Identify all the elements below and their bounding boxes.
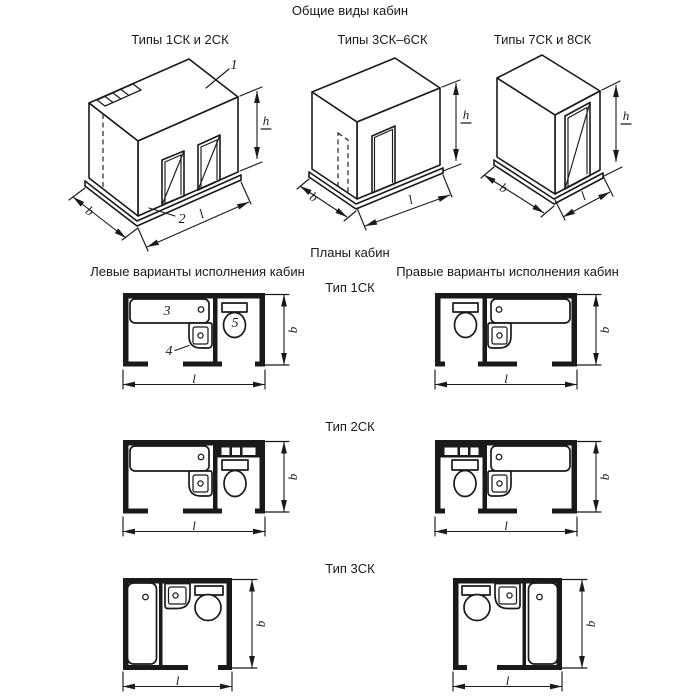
bath-drain bbox=[198, 307, 204, 313]
cabin-body bbox=[309, 58, 443, 209]
dimension-b: b bbox=[265, 442, 300, 513]
dim-h-label: h bbox=[463, 107, 470, 122]
left-variants-header: Левые варианты исполнения кабин bbox=[85, 264, 310, 279]
callout-1-label: 1 bbox=[231, 58, 238, 73]
bathtub bbox=[529, 583, 558, 664]
partition-wall bbox=[159, 583, 163, 665]
bathtub bbox=[491, 299, 570, 323]
basin-drain bbox=[198, 481, 203, 486]
washbasin bbox=[189, 323, 212, 348]
dim-h-label: h bbox=[623, 108, 630, 123]
dim-b-label: b bbox=[583, 620, 598, 627]
toilet bbox=[195, 586, 223, 621]
toilet bbox=[453, 303, 478, 338]
toilet-cistern bbox=[222, 460, 248, 470]
plan-2sk-right: b l bbox=[432, 437, 617, 545]
row-label-type-2sk: Тип 2СК bbox=[0, 419, 700, 434]
dimension-l: l bbox=[435, 370, 577, 389]
vent-duct-block bbox=[218, 445, 260, 458]
bath-drain bbox=[198, 454, 204, 460]
vent-duct-block bbox=[441, 445, 483, 458]
dim-b-label: b bbox=[83, 203, 98, 219]
mirrored-plan-geometry bbox=[435, 440, 577, 514]
dimension-l: l bbox=[123, 370, 265, 389]
dimension-h: h bbox=[240, 87, 271, 171]
dim-b-label: b bbox=[253, 620, 268, 627]
bathtub bbox=[491, 446, 570, 471]
toilet-bowl bbox=[195, 595, 221, 621]
iso-view-7sk-8sk: b l h bbox=[478, 48, 653, 223]
bathtub bbox=[128, 583, 157, 664]
gost-sanitary-cabin-drawing: Общие виды кабин Типы 1СК и 2СК Типы 3СК… bbox=[0, 0, 700, 700]
dimension-l: l bbox=[123, 517, 265, 536]
plan-1sk-left: 3 4 5 b l bbox=[120, 290, 305, 398]
dimension-b: b bbox=[562, 580, 598, 669]
dim-l-label: l bbox=[406, 192, 415, 207]
toilet-cistern bbox=[222, 303, 247, 312]
mirrored-plan-geometry bbox=[453, 578, 562, 670]
basin-drain bbox=[198, 333, 203, 338]
dim-l-label: l bbox=[506, 673, 510, 688]
dimension-b: b bbox=[577, 295, 612, 366]
toilet bbox=[462, 586, 490, 621]
dimension-h: h bbox=[442, 80, 471, 171]
page-title: Общие виды кабин bbox=[0, 3, 700, 18]
plan-3sk-right: b l bbox=[448, 575, 598, 700]
dimension-l: l bbox=[435, 517, 577, 536]
plan-2sk-left: b l bbox=[120, 437, 305, 545]
toilet-cistern bbox=[195, 586, 223, 595]
plan-3sk-left: b l bbox=[118, 575, 268, 700]
dimension-l: l bbox=[123, 672, 232, 691]
washbasin bbox=[495, 584, 520, 609]
partition-wall bbox=[213, 298, 218, 367]
washbasin bbox=[488, 471, 511, 496]
dimension-b: b bbox=[232, 580, 268, 669]
toilet-bowl bbox=[224, 471, 246, 497]
plan-1sk-right: b l bbox=[432, 290, 617, 398]
dim-b-label: b bbox=[285, 473, 300, 480]
dimension-b: b bbox=[577, 442, 612, 513]
mirrored-plan-geometry bbox=[435, 293, 577, 367]
callout-2-label: 2 bbox=[179, 212, 186, 227]
cabin-body bbox=[494, 55, 603, 204]
callout-5-label: 5 bbox=[232, 316, 239, 331]
row-label-type-3sk: Тип 3СК bbox=[0, 561, 700, 576]
iso-view-1sk-2sk: 1 2 b l h bbox=[63, 52, 275, 252]
dim-b-label: b bbox=[597, 473, 612, 480]
basin-drain bbox=[173, 593, 178, 598]
iso-view-3sk-6sk: b l h bbox=[295, 50, 480, 235]
plans-title: Планы кабин bbox=[0, 245, 700, 260]
dimension-h: h bbox=[602, 81, 631, 176]
right-variants-header: Правые варианты исполнения кабин bbox=[395, 264, 620, 279]
dim-l-label: l bbox=[504, 371, 508, 386]
washbasin bbox=[488, 323, 511, 348]
dim-b-label: b bbox=[307, 189, 321, 205]
dim-l-label: l bbox=[176, 673, 180, 688]
cabin-body bbox=[85, 59, 241, 226]
toilet bbox=[222, 460, 248, 497]
toilet bbox=[452, 460, 478, 497]
washbasin bbox=[165, 584, 190, 609]
caption-iso-1sk-2sk: Типы 1СК и 2СК bbox=[65, 32, 295, 47]
dim-l-label: l bbox=[504, 518, 508, 533]
dim-b-label: b bbox=[497, 180, 511, 196]
dim-l-label: l bbox=[192, 518, 196, 533]
dim-b-label: b bbox=[285, 326, 300, 333]
callout-4: 4 bbox=[166, 344, 190, 359]
bath-drain bbox=[143, 594, 149, 600]
dim-l-label: l bbox=[578, 188, 589, 203]
caption-iso-7sk-8sk: Типы 7СК и 8СК bbox=[455, 32, 630, 47]
dimension-l: l bbox=[453, 672, 562, 691]
bathtub bbox=[130, 446, 209, 471]
caption-iso-3sk-6sk: Типы 3СК–6СК bbox=[295, 32, 470, 47]
callout-3-label: 3 bbox=[163, 304, 171, 319]
washbasin bbox=[189, 471, 212, 496]
dim-b-label: b bbox=[597, 326, 612, 333]
dim-l-label: l bbox=[197, 206, 207, 221]
dim-h-label: h bbox=[263, 113, 270, 128]
callout-4-label: 4 bbox=[166, 344, 173, 359]
dim-l-label: l bbox=[192, 371, 196, 386]
dimension-b: b bbox=[265, 295, 300, 366]
